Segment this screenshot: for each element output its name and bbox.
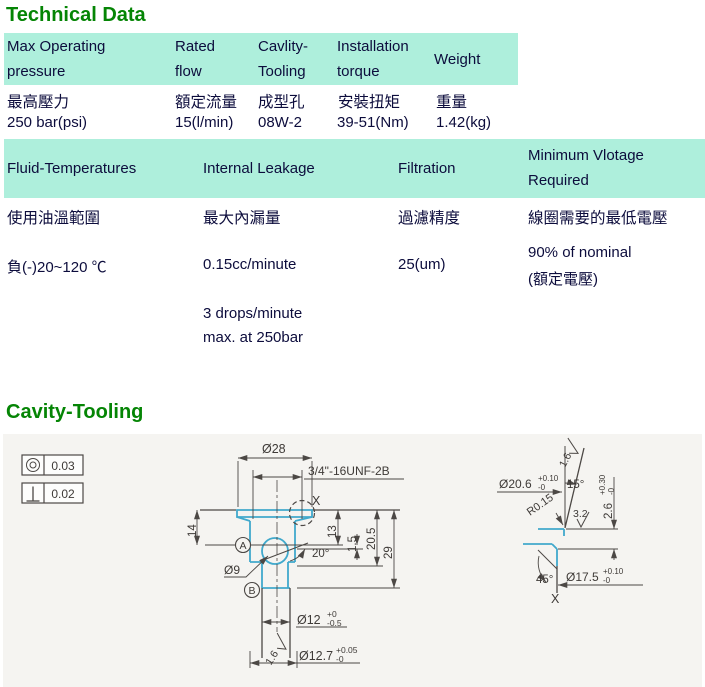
value-voltage: 90% of nominal — [528, 244, 631, 261]
col-header-filtration: Filtration — [398, 139, 508, 198]
dim-dia17-5: Ø17.5 +0.10 -0 — [558, 567, 643, 585]
dim-angle45: 45° — [536, 550, 557, 586]
cavity-tooling-drawing: 0.03 0.02 Ø28 — [3, 434, 702, 687]
dim-r0-15: R0.15 — [525, 492, 563, 525]
col-header-cavlity-tooling: Cavlity-Tooling — [258, 34, 338, 84]
value-torque: 39-51(Nm) — [337, 114, 409, 131]
label-zh-fluid-temp: 使用油溫範圍 — [7, 206, 100, 228]
r0-15-label: R0.15 — [525, 492, 556, 519]
value-leakage: 0.15cc/minute — [203, 256, 296, 273]
datum-b-balloon: B — [245, 583, 260, 598]
dia20-6-tol-hi: +0.10 — [538, 474, 559, 483]
dim-dia28: Ø28 — [238, 442, 312, 507]
dia12-7-tol-lo: -0 — [336, 654, 344, 664]
concentricity-frame: 0.03 — [22, 455, 83, 475]
detail-x-label: X — [312, 494, 321, 508]
value-filtration: 25(um) — [398, 256, 446, 273]
dim-13: 13 — [327, 510, 339, 545]
concentricity-value: 0.03 — [51, 459, 75, 473]
len2-6-tol-lo: -0 — [607, 487, 616, 495]
len2-6-label: 2.6 — [603, 503, 615, 519]
label-zh-weight: 重量 — [436, 90, 467, 112]
detail-view-x-label: X — [551, 592, 560, 606]
value-cavity: 08W-2 — [258, 114, 302, 131]
spec-table-1-header-band: Max Operating pressure Rated flow Cavlit… — [4, 33, 518, 85]
datum-a-balloon: A — [236, 538, 251, 553]
label-zh-max-pressure: 最高壓力 — [7, 90, 69, 112]
value-leakage-line2: 3 drops/minute — [203, 305, 302, 322]
perpendicularity-frame: 0.02 — [22, 483, 83, 503]
technical-data-heading: Technical Data — [6, 4, 146, 27]
dia12-7-label: Ø12.7 — [299, 649, 333, 663]
value-leakage-line3: max. at 250bar — [203, 329, 303, 346]
label-zh-cavity: 成型孔 — [258, 90, 305, 112]
value-rated-flow: 15(l/min) — [175, 114, 233, 131]
dia17-5-tol-lo: -0 — [603, 576, 611, 585]
col-header-max-operating-pressure: Max Operating pressure — [7, 34, 147, 84]
detail-x-view: 15° 1.6 Ø20.6 +0.10 -0 R0.15 3.2 2.6 + — [497, 438, 643, 606]
perpendicularity-value: 0.02 — [51, 487, 75, 501]
angle45-label: 45° — [536, 574, 553, 586]
dim-1-5-label: 1.5 — [347, 536, 359, 552]
spec-table-2-header-band: Fluid-Temperatures Internal Leakage Filt… — [4, 139, 705, 198]
label-zh-filtration: 過濾精度 — [398, 206, 460, 228]
dim-dia12: Ø12 +0 -0.5 — [262, 609, 347, 628]
dim-dia28-label: Ø28 — [262, 442, 286, 456]
dim-dia20-6: Ø20.6 +0.10 -0 — [497, 474, 562, 492]
dia20-6-label: Ø20.6 — [499, 477, 532, 491]
dim-13-label: 13 — [327, 525, 339, 538]
label-zh-rated-flow: 額定流量 — [175, 90, 237, 112]
dia12-tol-lo: -0.5 — [327, 618, 342, 628]
value-fluid-temp: 負(-)20~120 ℃ — [7, 256, 107, 277]
col-header-weight: Weight — [434, 33, 514, 85]
dia9-label: Ø9 — [224, 563, 240, 577]
label-zh-leakage: 最大內漏量 — [203, 206, 281, 228]
col-header-rated-flow: Rated flow — [175, 34, 237, 84]
datum-b-label: B — [248, 585, 255, 597]
value-max-pressure: 250 bar(psi) — [7, 114, 87, 131]
label-zh-voltage: 線圈需要的最低電壓 — [528, 206, 668, 228]
col-header-fluid-temperatures: Fluid-Temperatures — [7, 139, 182, 198]
angle15-label: 15° — [567, 479, 584, 491]
label-zh-torque: 安裝扭矩 — [338, 90, 400, 112]
dia20-6-tol-lo: -0 — [538, 483, 546, 492]
finish-1-6-label: 1.6 — [263, 648, 281, 667]
detail-finish-1-6-icon: 1.6 — [555, 438, 582, 470]
cavity-main-view: Ø28 3/4"-16UNF-2B X 14 A 13 — [187, 442, 404, 668]
dim-14: 14 — [187, 510, 199, 545]
dim-angle20: 20° — [266, 543, 329, 561]
cavity-tooling-heading: Cavity-Tooling — [6, 401, 143, 424]
thread-label: 3/4"-16UNF-2B — [308, 464, 390, 478]
dim-14-label: 14 — [187, 524, 199, 537]
value-voltage-line2: (額定電壓) — [528, 268, 598, 289]
dia17-5-tol-hi: +0.10 — [603, 567, 624, 576]
col-header-installation-torque: Installation torque — [337, 34, 432, 84]
col-header-minimum-voltage: Minimum Vlotage Required — [528, 143, 693, 193]
angle20-label: 20° — [312, 548, 329, 560]
dia12-label: Ø12 — [297, 613, 321, 627]
datasheet-page: { "sections": { "technical_data_title": … — [0, 0, 705, 687]
len2-6-tol-hi: +0.30 — [598, 474, 607, 495]
dim-20-5-label: 20.5 — [366, 528, 378, 550]
value-weight: 1.42(kg) — [436, 114, 491, 131]
col-header-internal-leakage: Internal Leakage — [203, 139, 378, 198]
detail-finish-3-2-icon: 3.2 — [573, 508, 589, 527]
tolerance-frames: 0.03 0.02 — [22, 455, 83, 503]
dia17-5-label: Ø17.5 — [566, 570, 599, 584]
dim-29-label: 29 — [383, 546, 395, 559]
datum-a-label: A — [239, 540, 246, 552]
